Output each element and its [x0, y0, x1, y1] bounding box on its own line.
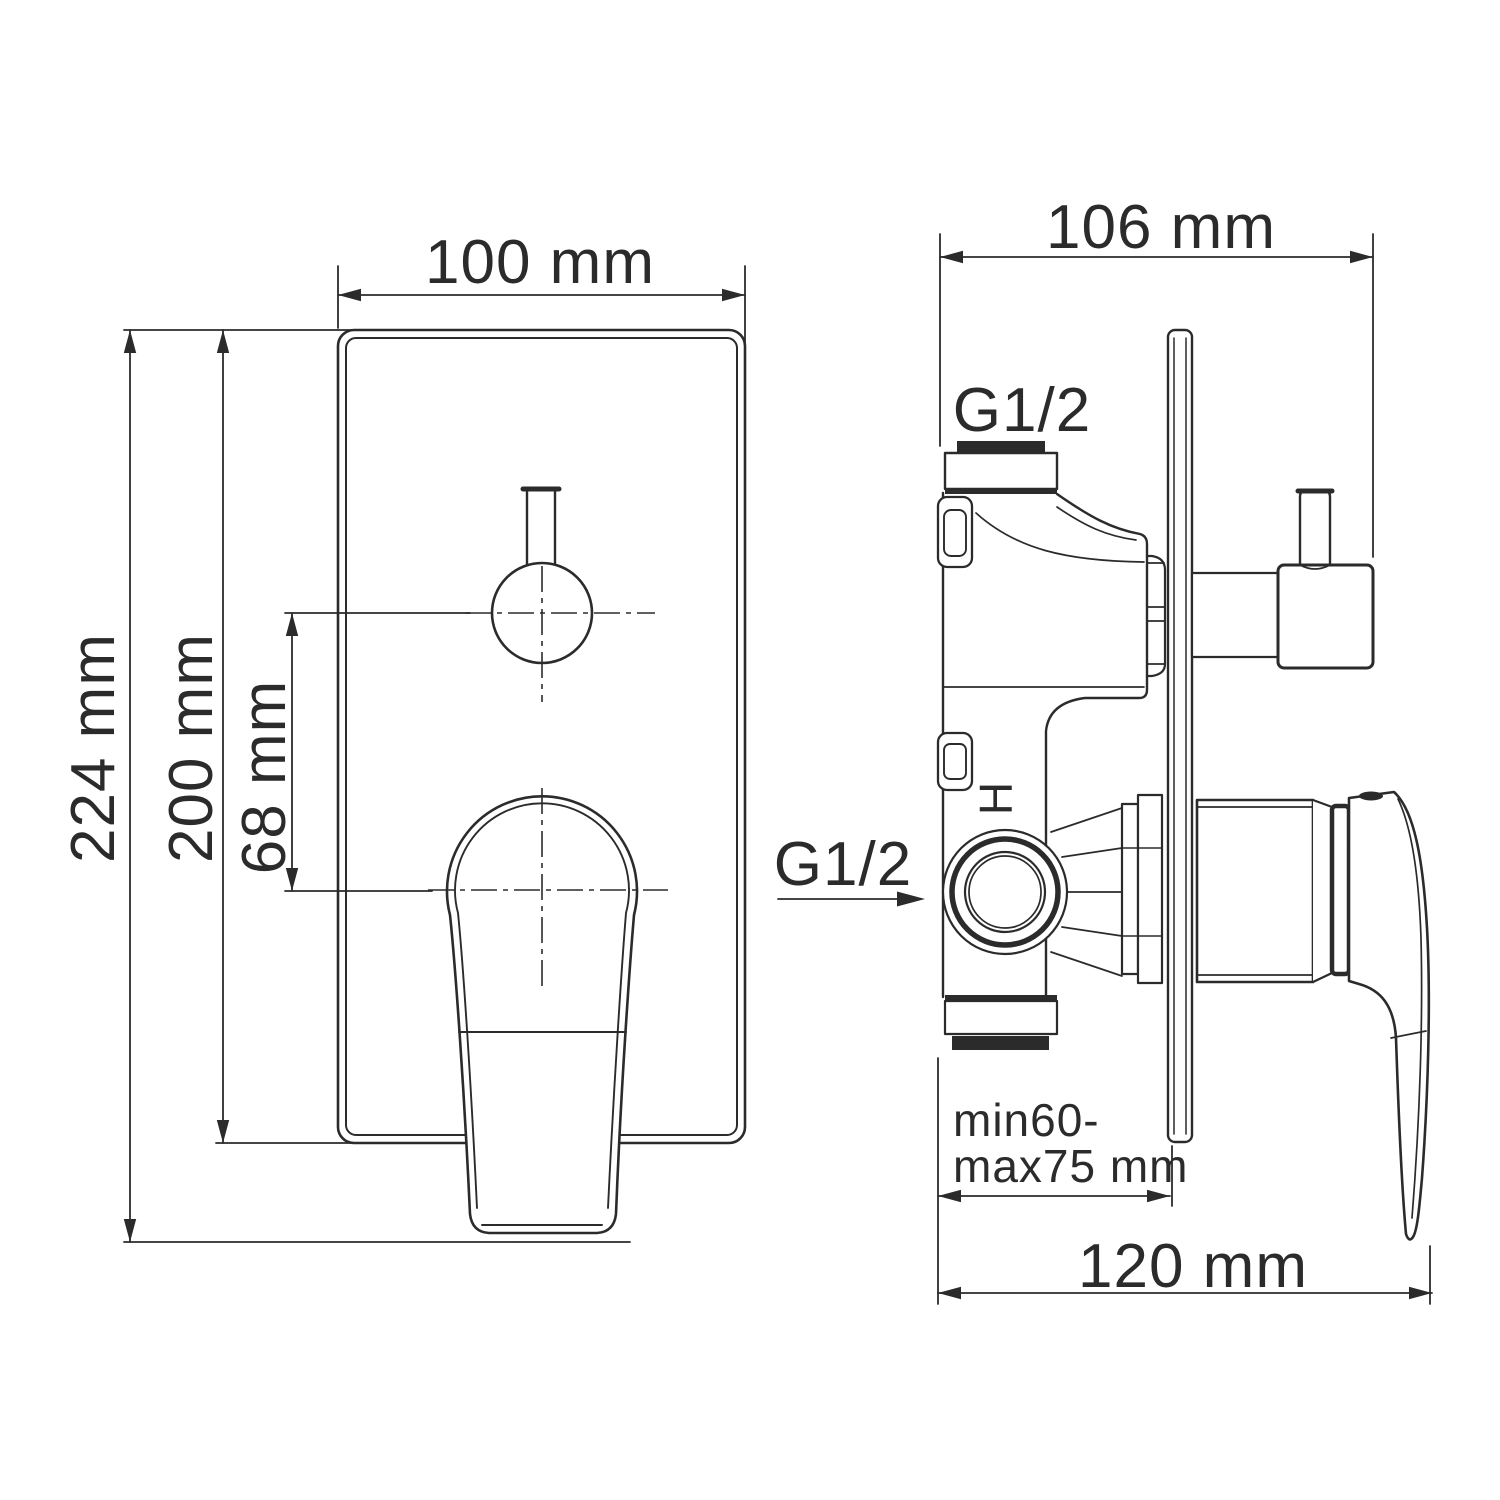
arrowhead [124, 1219, 136, 1242]
diverter-knob-side [1278, 565, 1373, 668]
technical-drawing: 100 mm 224 mm 200 mm 68 mm [0, 0, 1500, 1500]
side-depth-label: 106 mm [1046, 193, 1276, 262]
bottom-thread-seal [952, 1036, 1049, 1050]
diverter-stem [527, 489, 555, 565]
bottom-cap [945, 1001, 1057, 1034]
top-fitting-base [945, 489, 1057, 494]
arrowhead [217, 330, 229, 353]
lever-barrel-side [1197, 800, 1313, 982]
body-fill [943, 493, 1147, 698]
arrowhead [938, 1287, 961, 1299]
side-dimensions: 106 mm G1/2 G1/2 min60- max75 mm 120 mm [774, 193, 1432, 1304]
arrowhead [124, 330, 136, 353]
lever-collar-band [1332, 806, 1349, 974]
barrel-taper [1313, 800, 1332, 982]
arrowhead [722, 289, 745, 301]
front-overall-height-label: 224 mm [59, 633, 128, 863]
front-width-label: 100 mm [425, 228, 655, 297]
front-view [338, 330, 745, 1233]
lever-side [1349, 792, 1429, 1239]
cartridge-flange-outer [1138, 795, 1162, 983]
lever-top-dot [1359, 792, 1383, 801]
top-port-fitting [945, 453, 1057, 489]
diverter-shaft-side [1192, 573, 1278, 657]
side-overall-depth-label: 120 mm [1078, 1232, 1308, 1301]
embed-depth-label-line2: max75 mm [953, 1140, 1188, 1192]
arrowhead [940, 251, 963, 263]
wall-plate-side [1168, 330, 1192, 1142]
body-fill [1147, 556, 1165, 676]
inlet-port-outer [943, 830, 1067, 954]
inlet-thread-label: G1/2 [774, 830, 912, 899]
arrowhead [286, 613, 298, 636]
hot-marking-label: H [970, 781, 1022, 815]
front-plate-height-label: 200 mm [157, 633, 226, 863]
diverter-stem-side [1300, 490, 1330, 565]
arrowhead [217, 1120, 229, 1143]
arrowhead [1350, 251, 1373, 263]
embed-depth-label-line1: min60- [953, 1094, 1100, 1146]
arrowhead [1409, 1287, 1432, 1299]
top-thread-label: G1/2 [953, 376, 1091, 445]
drawing-canvas: 100 mm 224 mm 200 mm 68 mm [0, 0, 1500, 1500]
cartridge-flange [1122, 804, 1138, 974]
front-offset-label: 68 mm [230, 680, 299, 874]
arrowhead [338, 289, 361, 301]
